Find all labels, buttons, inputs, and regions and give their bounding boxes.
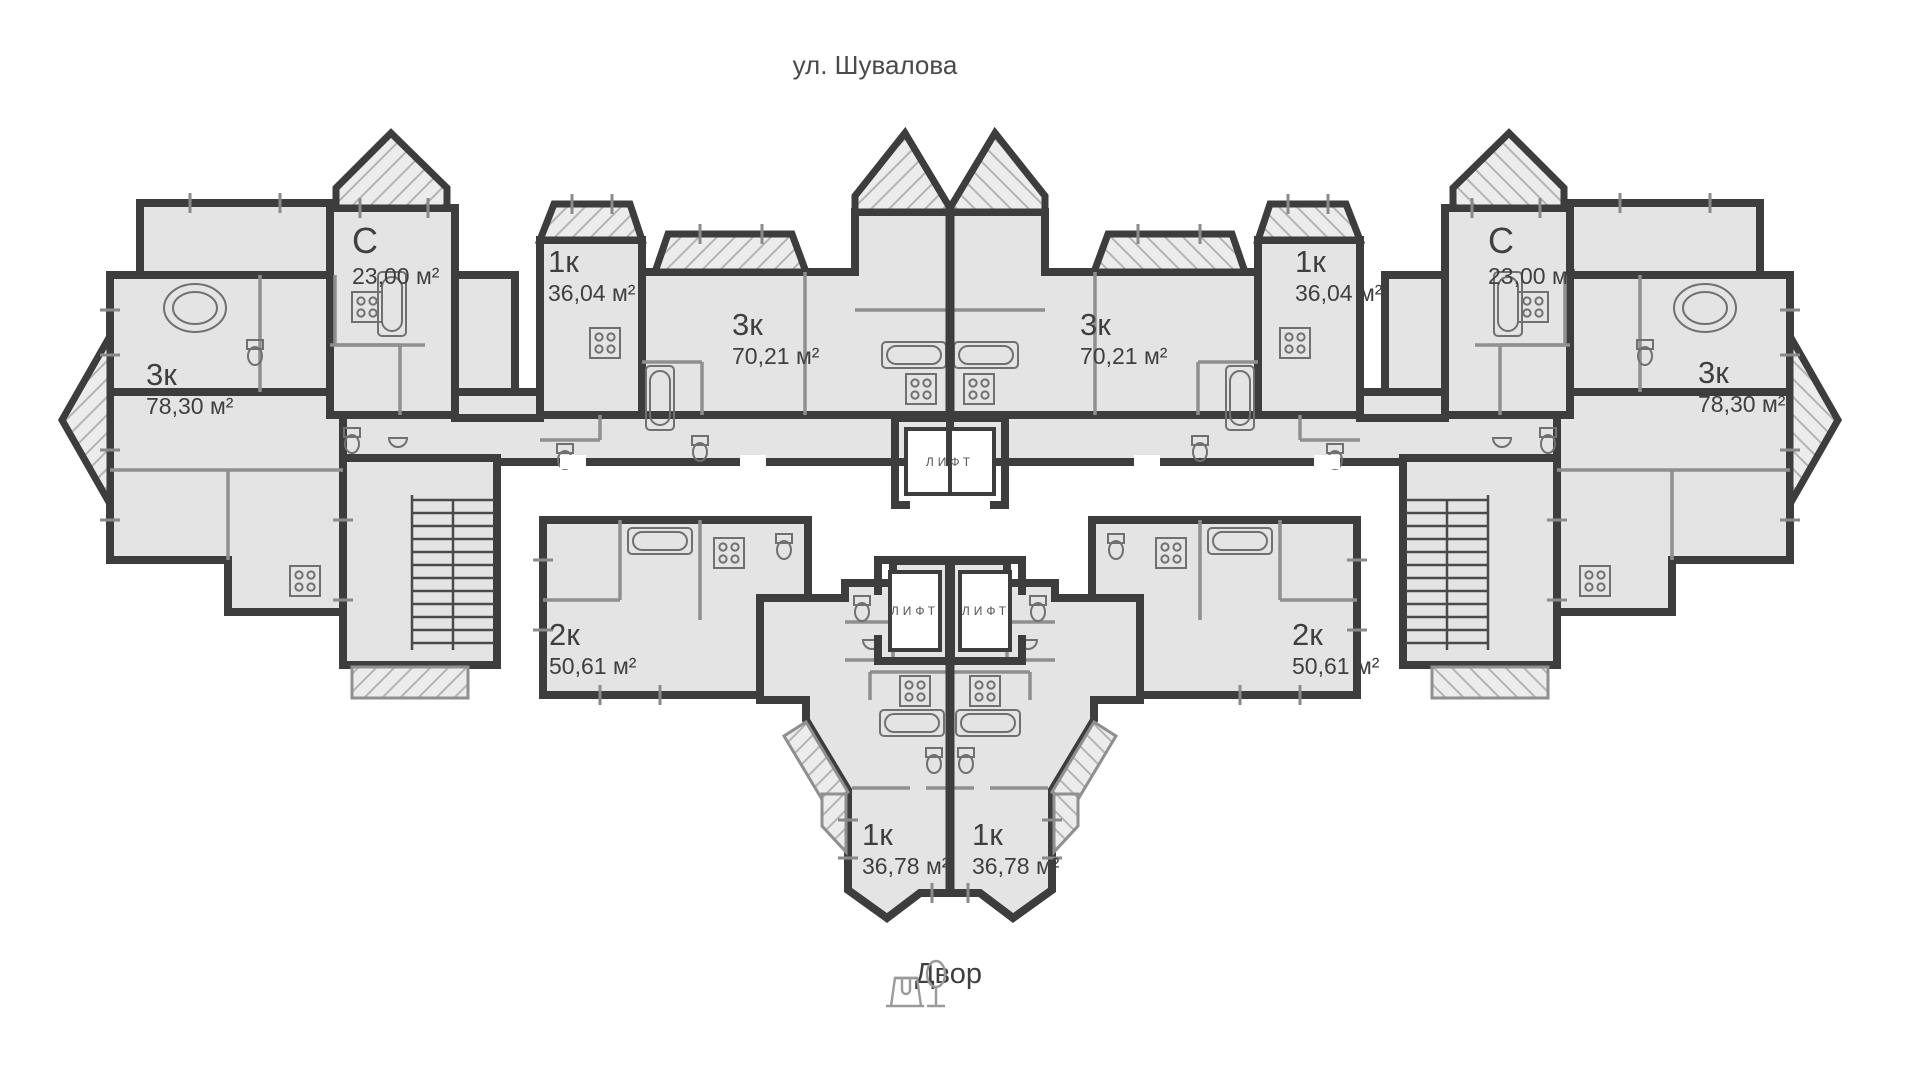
apartment-label-left-studio[interactable]: С 23,00 м² [352,222,439,289]
apartment-label-left-2k-50[interactable]: 2к 50,61 м² [549,618,636,679]
floor-plan-drawing [0,0,1920,1079]
courtyard-block: Двор [883,958,982,993]
apartment-label-left-1k-36[interactable]: 1к 36,04 м² [548,245,635,306]
elevator-label-lower-left: ЛИФТ [891,604,939,618]
floor-plan-canvas: ул. Шувалова 3к 78,30 м² С 23,00 м² 1к 3… [0,0,1920,1079]
apartment-label-right-1k-36[interactable]: 1к 36,04 м² [1295,245,1382,306]
elevator-label-lower-right: ЛИФТ [962,604,1010,618]
apartment-label-right-studio[interactable]: С 23,00 м² [1488,222,1575,289]
apartment-label-right-2k-50[interactable]: 2к 50,61 м² [1292,618,1379,679]
apartment-label-bottom-left-1k[interactable]: 1к 36,78 м² [862,818,949,879]
street-label: ул. Шувалова [793,50,958,81]
apartment-label-left-3k-78[interactable]: 3к 78,30 м² [146,358,233,419]
swing-and-tree-icon [883,958,949,1012]
apartment-label-left-3k-70[interactable]: 3к 70,21 м² [732,308,819,369]
apartment-label-right-3k-70[interactable]: 3к 70,21 м² [1080,308,1167,369]
apartment-label-bottom-right-1k[interactable]: 1к 36,78 м² [972,818,1059,879]
apartment-label-right-3k-78[interactable]: 3к 78,30 м² [1698,356,1785,417]
elevator-label-upper: ЛИФТ [926,455,974,469]
